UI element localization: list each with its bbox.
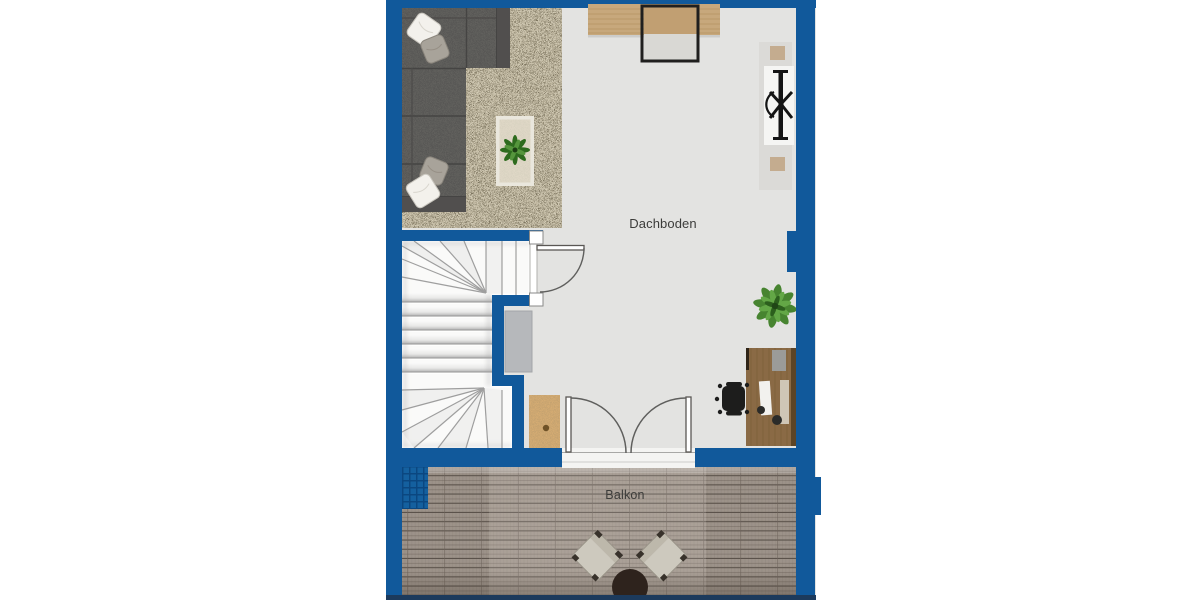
svg-text:Dachboden: Dachboden bbox=[629, 216, 696, 231]
svg-text:Balkon: Balkon bbox=[605, 488, 644, 502]
